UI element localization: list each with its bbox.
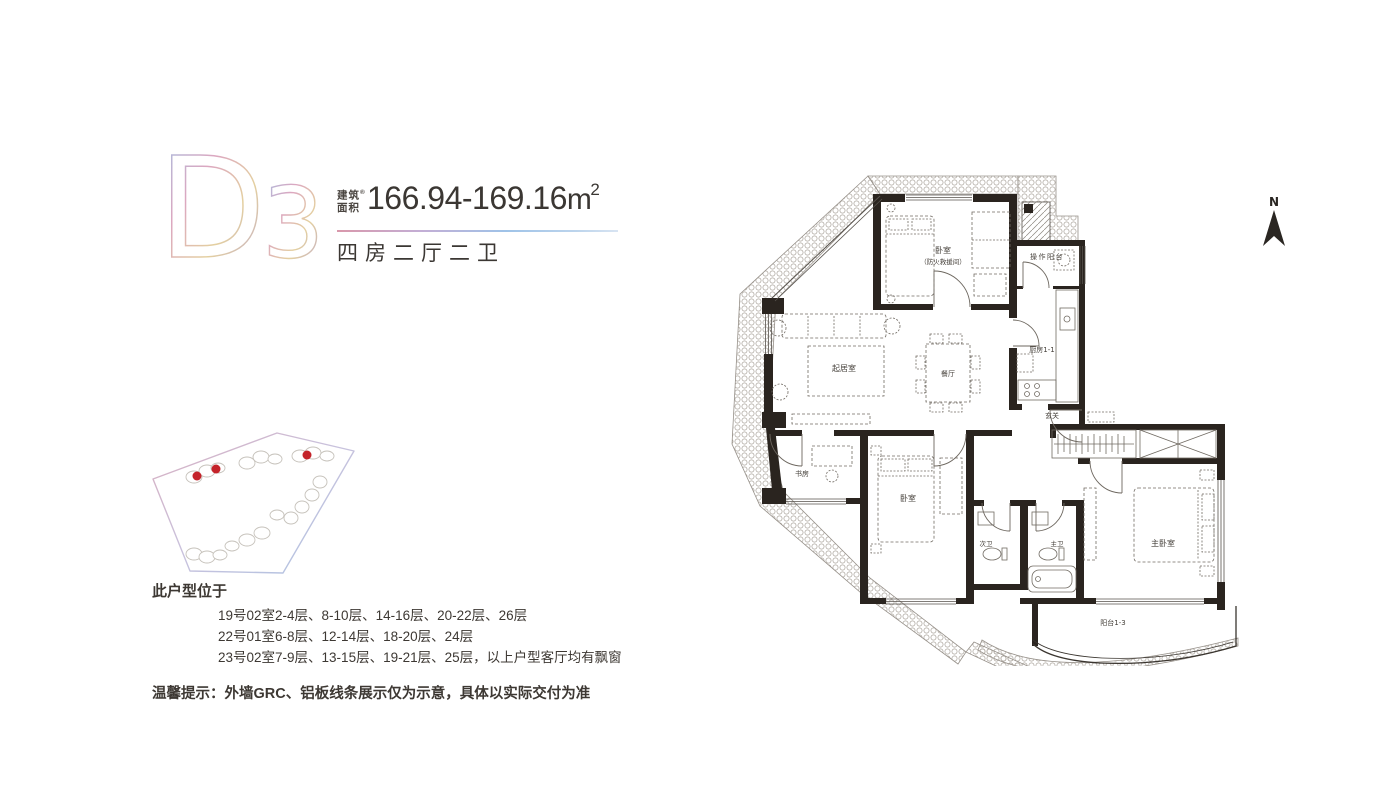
room-label-foyer: 玄关 xyxy=(1045,411,1059,420)
room-label-operation-balcony: 操作阳台 xyxy=(1030,252,1064,261)
building-area-value: 166.94-169.16m2 xyxy=(367,180,599,217)
room-label-kitchen: 厨房1-1 xyxy=(1029,345,1054,354)
ac-platform xyxy=(1022,202,1050,242)
walls xyxy=(762,194,1225,646)
logo-letter-d: D xyxy=(158,146,266,266)
area-unit-sup: 2 xyxy=(590,180,599,199)
room-label-living-room: 起居室 xyxy=(832,363,856,373)
area-unit: m xyxy=(567,183,592,216)
location-title: 此户型位于 xyxy=(152,580,622,601)
floor-plan: 卧室 （防火救援间） 操作阳台 厨房1-1 起居室 餐厅 玄关 书房 卧室 次卫… xyxy=(720,158,1262,666)
room-label-bedroom-2: 卧室 xyxy=(900,493,916,503)
room-label-dining-room: 餐厅 xyxy=(941,369,955,378)
location-text-block: 此户型位于 19号02室2-4层、8-10层、14-16层、20-22层、26层… xyxy=(152,580,622,719)
room-label-second-bath: 次卫 xyxy=(980,539,994,548)
room-label-bedroom-fire-sub: （防火救援间） xyxy=(920,257,966,266)
area-value: 166.94-169.16 xyxy=(367,180,567,216)
room-label-study: 书房 xyxy=(795,469,809,478)
room-label-bedroom-fire: 卧室 xyxy=(935,245,951,255)
room-label-master-bath: 主卫 xyxy=(1051,539,1065,548)
layout-type-text: 四房二厅二卫 xyxy=(337,237,505,267)
area-label-line2: 面积 xyxy=(337,202,360,214)
site-plan xyxy=(150,425,360,580)
location-tip: 温馨提示：外墙GRC、铝板线条展示仅为示意，具体以实际交付为准 xyxy=(152,683,622,705)
logo-stripes xyxy=(146,149,156,261)
doors xyxy=(770,262,1122,531)
building-area-label: 建筑® 面积 xyxy=(337,187,371,215)
location-line-2: 22号01室6-8层、12-14层、18-20层、24层 xyxy=(218,626,622,647)
room-label-balcony: 阳台1-3 xyxy=(1100,618,1125,627)
exterior-hatch-band xyxy=(732,176,1238,666)
north-arrow-icon xyxy=(1263,210,1285,246)
north-label: N xyxy=(1269,195,1279,209)
unit-code-logo: D 3 xyxy=(140,146,340,266)
room-label-master-bedroom: 主卧室 xyxy=(1151,538,1175,548)
area-label-line1: 建筑 xyxy=(337,190,360,202)
north-indicator: N xyxy=(1256,192,1292,254)
gradient-underline xyxy=(337,230,618,232)
logo-digit-3: 3 xyxy=(262,167,324,266)
furniture xyxy=(770,204,1216,592)
balcony-parapet xyxy=(1033,606,1236,663)
area-note-mark: ® xyxy=(360,189,365,196)
location-line-3: 23号02室7-9层、13-15层、19-21层、25层，以上户型客厅均有飘窗 xyxy=(218,647,622,668)
location-line-1: 19号02室2-4层、8-10层、14-16层、20-22层、26层 xyxy=(218,605,622,626)
